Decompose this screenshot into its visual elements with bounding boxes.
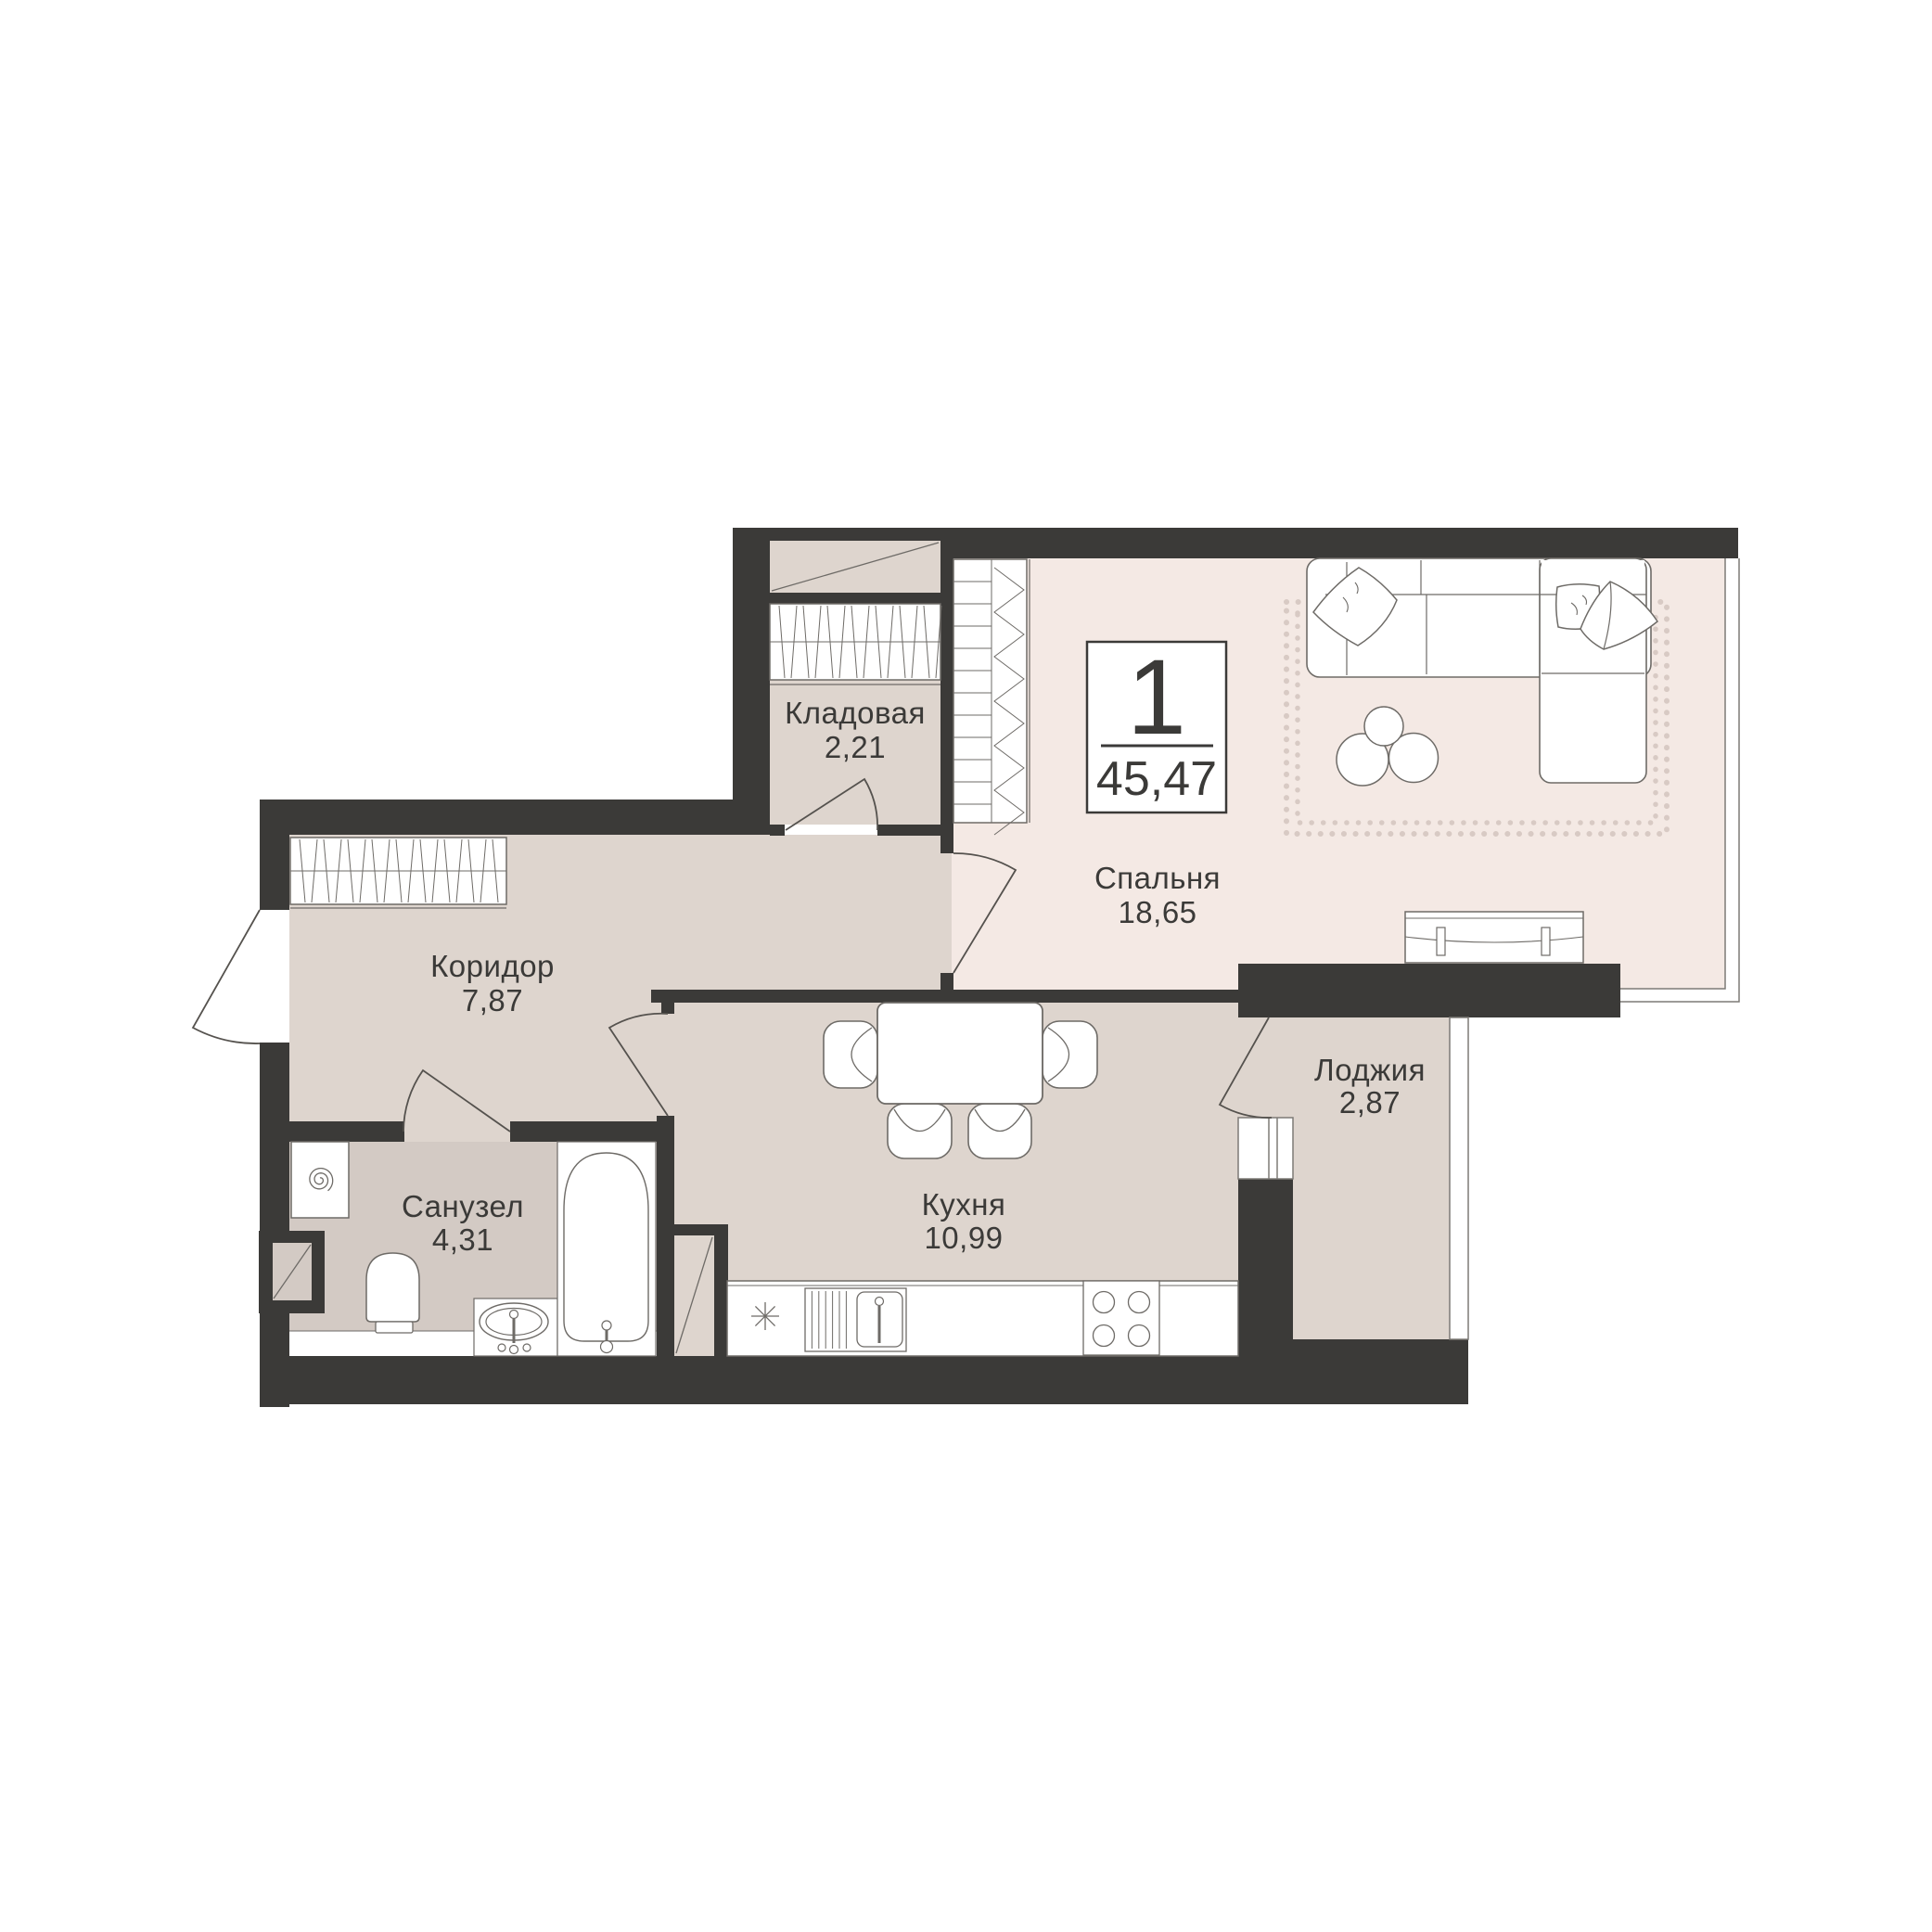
svg-text:Санузел: Санузел xyxy=(402,1189,524,1223)
svg-text:18,65: 18,65 xyxy=(1118,895,1196,929)
svg-text:7,87: 7,87 xyxy=(462,983,523,1017)
svg-text:45,47: 45,47 xyxy=(1096,752,1217,806)
svg-text:Кухня: Кухня xyxy=(922,1187,1006,1222)
svg-text:2,21: 2,21 xyxy=(825,730,886,764)
svg-text:Кладовая: Кладовая xyxy=(785,696,926,730)
svg-text:1: 1 xyxy=(1127,638,1186,757)
svg-text:2,87: 2,87 xyxy=(1339,1085,1401,1120)
svg-text:4,31: 4,31 xyxy=(432,1222,493,1257)
svg-text:10,99: 10,99 xyxy=(924,1221,1003,1255)
svg-text:Лоджия: Лоджия xyxy=(1314,1053,1426,1087)
svg-text:Коридор: Коридор xyxy=(430,949,555,983)
svg-text:Спальня: Спальня xyxy=(1094,861,1221,895)
